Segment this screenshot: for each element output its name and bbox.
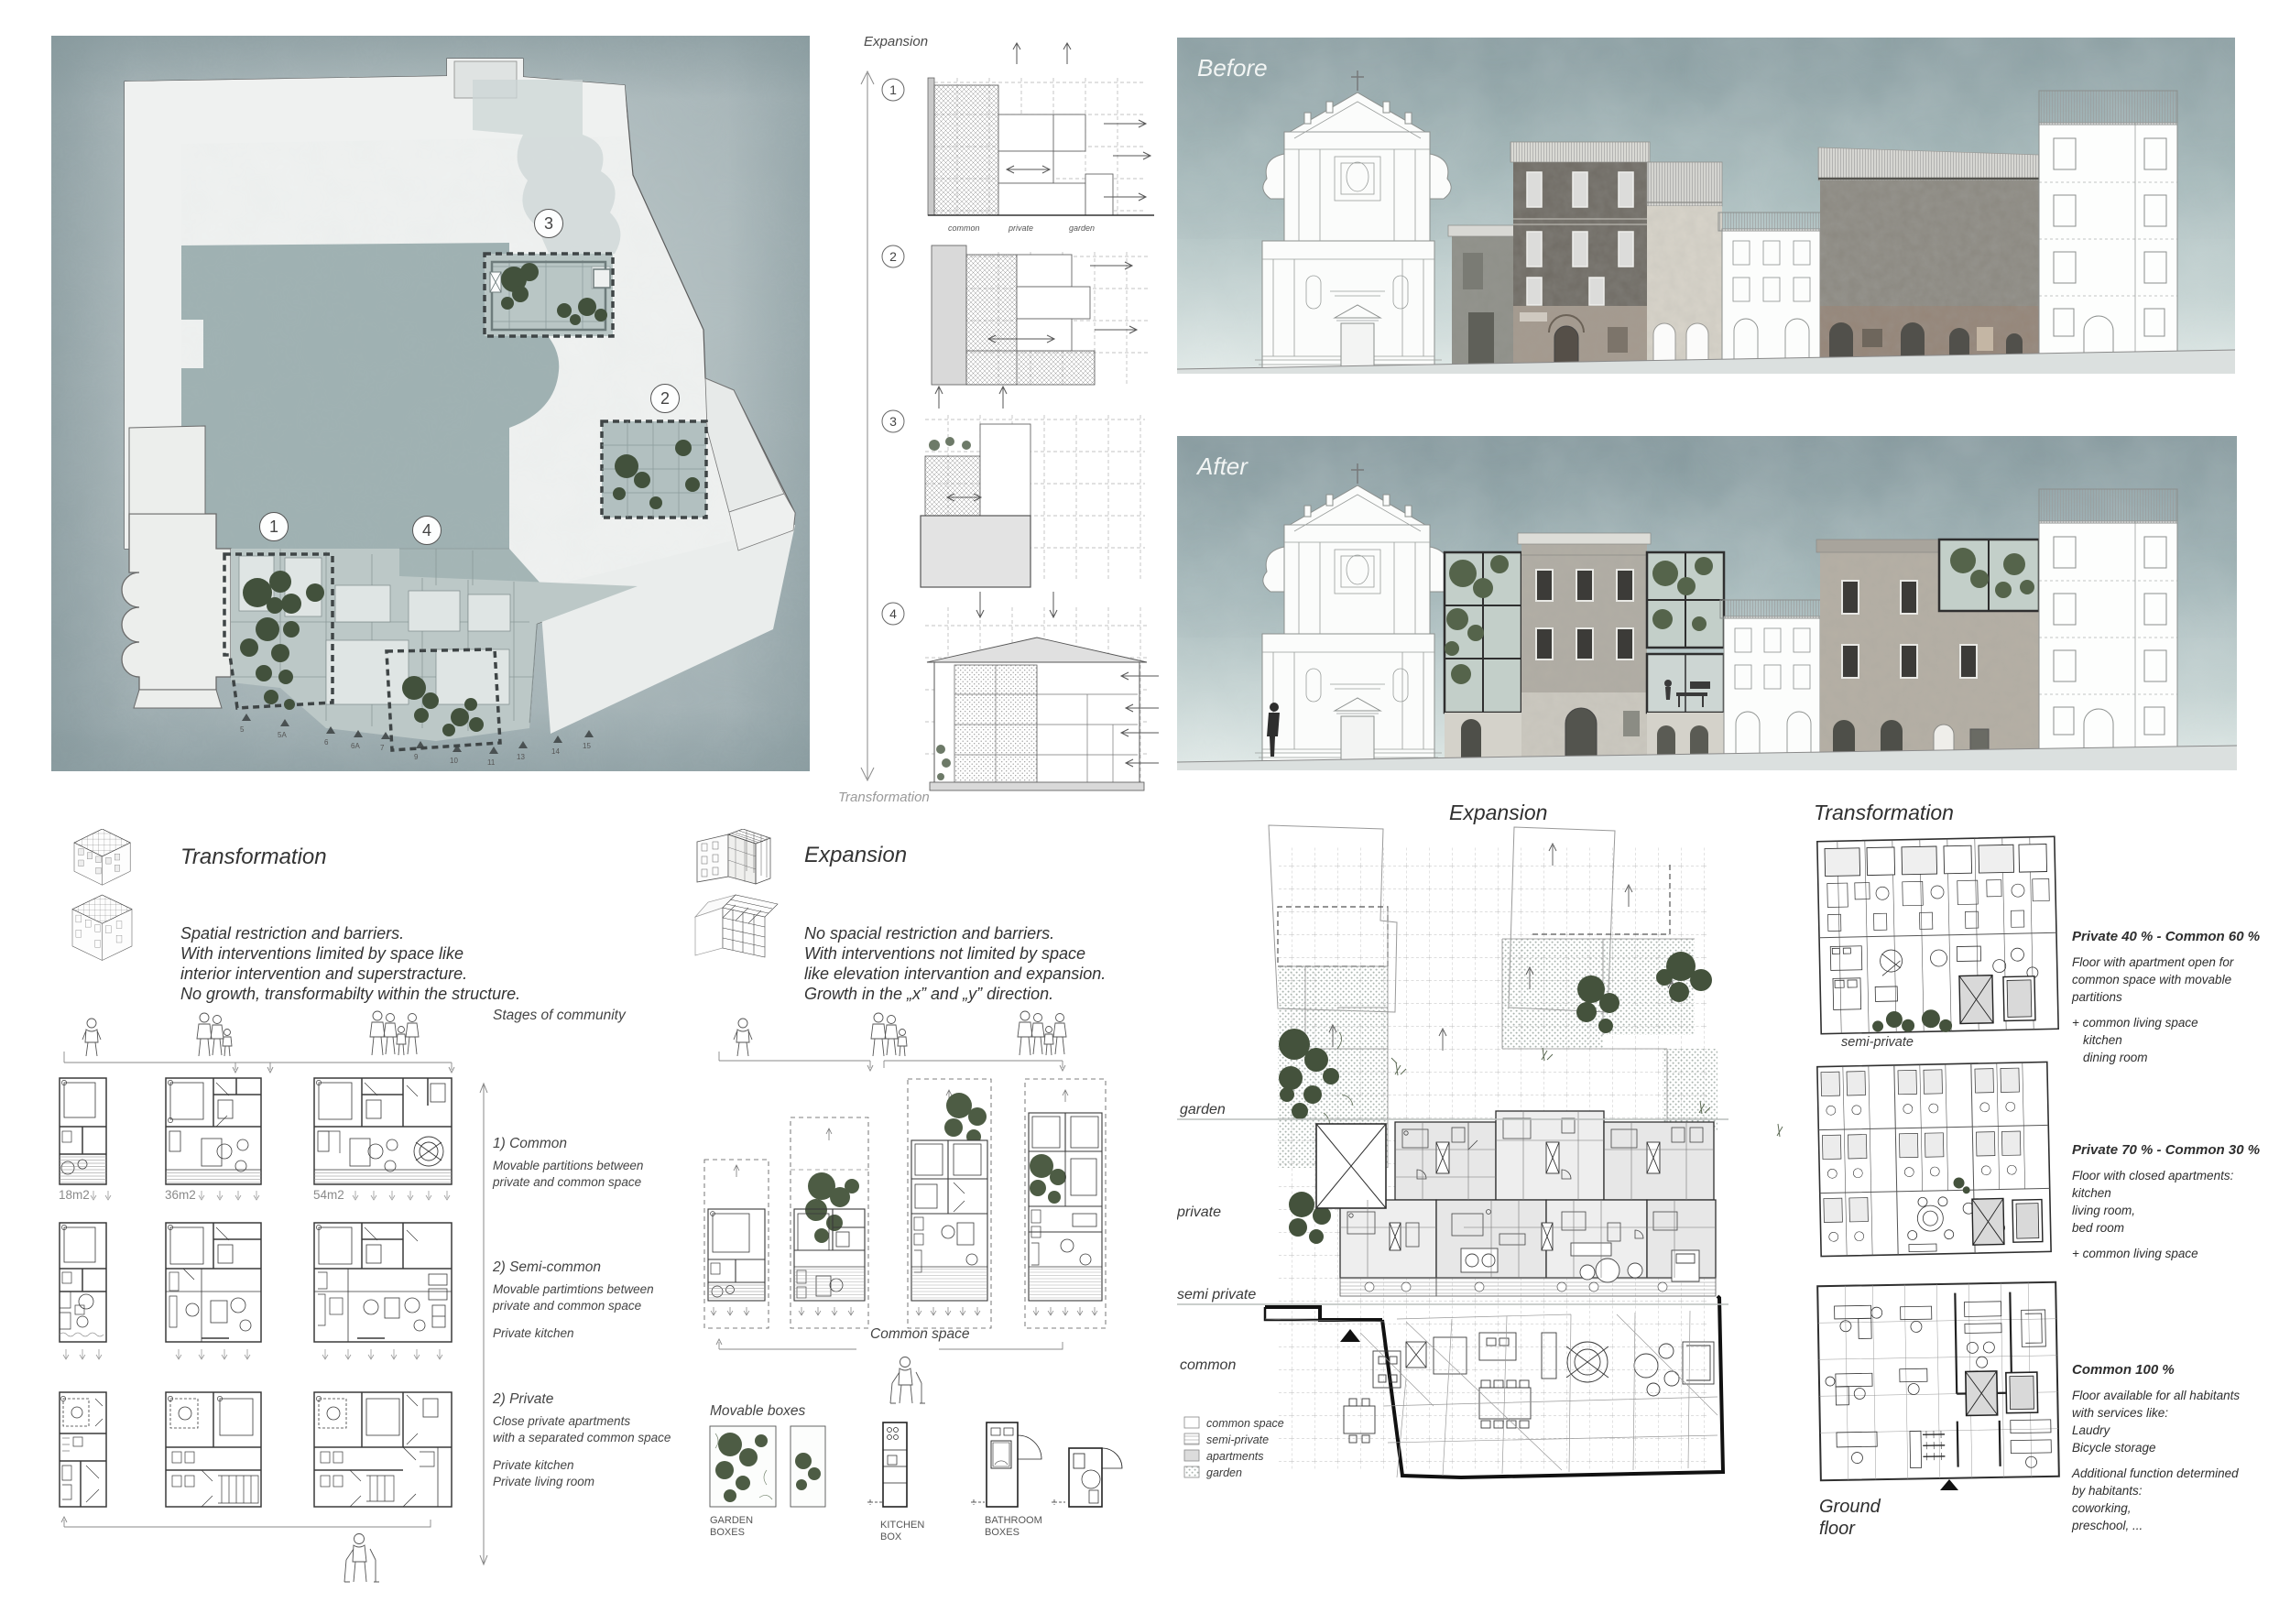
svg-text:Private living room: Private living room — [493, 1475, 594, 1488]
svg-text:No growth, transformabilty wit: No growth, transformabilty within the st… — [180, 985, 520, 1003]
svg-text:Close private apartments: Close private apartments — [493, 1414, 630, 1428]
svg-text:BATHROOM: BATHROOM — [985, 1515, 1042, 1526]
svg-text:1) Common: 1) Common — [493, 1136, 567, 1151]
svg-text:with services like:: with services like: — [2072, 1406, 2168, 1420]
svg-text:11: 11 — [487, 758, 496, 767]
svg-text:+ common living space: + common living space — [2072, 1247, 2198, 1260]
svg-text:Common space: Common space — [870, 1326, 970, 1342]
svg-text:Movable partimtions between: Movable partimtions between — [493, 1282, 654, 1296]
svg-text:private and common space: private and common space — [492, 1175, 641, 1189]
svg-text:BOXES: BOXES — [985, 1527, 1020, 1538]
svg-text:6A: 6A — [351, 742, 360, 750]
svg-text:Movable boxes: Movable boxes — [710, 1403, 806, 1419]
svg-text:common: common — [1180, 1357, 1236, 1373]
svg-text:Floor available for all habita: Floor available for all habitants — [2072, 1389, 2240, 1402]
svg-text:with a separated common space: with a separated common space — [493, 1431, 671, 1444]
svg-text:coworking,: coworking, — [2072, 1501, 2132, 1515]
svg-text:BOXES: BOXES — [710, 1527, 745, 1538]
svg-text:No spacial restriction and bar: No spacial restriction and barriers. — [804, 924, 1054, 943]
svg-text:4: 4 — [889, 606, 897, 621]
svg-text:private and common space: private and common space — [492, 1299, 641, 1313]
svg-text:Transformation: Transformation — [180, 845, 327, 869]
svg-text:GARDEN: GARDEN — [710, 1515, 753, 1526]
svg-text:Floor with closed apartments:: Floor with closed apartments: — [2072, 1169, 2234, 1183]
svg-text:Private 40 % - Common 60 %: Private 40 % - Common 60 % — [2072, 929, 2260, 944]
svg-text:3: 3 — [889, 414, 897, 429]
svg-text:apartments: apartments — [1206, 1450, 1264, 1463]
svg-text:36m2: 36m2 — [165, 1188, 196, 1202]
svg-text:2) Private: 2) Private — [492, 1391, 554, 1407]
svg-text:Private kitchen: Private kitchen — [493, 1458, 574, 1472]
svg-text:Movable partitions between: Movable partitions between — [493, 1159, 643, 1172]
svg-text:KITCHEN: KITCHEN — [880, 1520, 924, 1531]
svg-text:like elevation intervantion an: like elevation intervantion and expansio… — [804, 965, 1106, 983]
svg-text:2: 2 — [660, 389, 670, 408]
svg-text:by habitants:: by habitants: — [2072, 1484, 2143, 1498]
svg-text:Expansion: Expansion — [864, 34, 928, 49]
svg-text:3: 3 — [544, 214, 553, 233]
svg-text:Common 100 %: Common 100 % — [2072, 1362, 2175, 1378]
svg-text:After: After — [1195, 452, 1249, 480]
svg-text:common space with movable: common space with movable — [2072, 973, 2231, 986]
svg-text:10: 10 — [450, 757, 458, 765]
svg-text:5A: 5A — [278, 731, 287, 739]
svg-text:2: 2 — [889, 249, 897, 264]
svg-text:5: 5 — [240, 725, 245, 734]
svg-text:14: 14 — [551, 747, 560, 756]
svg-text:Private 70 % - Common 30 %: Private 70 % - Common 30 % — [2072, 1142, 2260, 1158]
svg-text:semi-private: semi-private — [1206, 1433, 1269, 1446]
svg-text:kitchen: kitchen — [2083, 1033, 2122, 1047]
svg-text:partitions: partitions — [2071, 990, 2122, 1004]
svg-text:common: common — [948, 223, 980, 233]
svg-text:semi private: semi private — [1177, 1287, 1256, 1302]
svg-text:15: 15 — [583, 742, 591, 750]
svg-text:+ common living space: + common living space — [2072, 1016, 2198, 1030]
svg-text:floor: floor — [1819, 1519, 1856, 1539]
svg-text:Private kitchen: Private kitchen — [493, 1326, 574, 1340]
svg-text:1: 1 — [269, 518, 278, 536]
svg-text:interior intervention and sup: interior intervention and superstracture… — [180, 965, 467, 983]
svg-text:Additional function determined: Additional function determined — [2071, 1466, 2239, 1480]
svg-text:Stages of community: Stages of community — [493, 1008, 627, 1023]
svg-text:Ground: Ground — [1819, 1497, 1881, 1517]
svg-text:7: 7 — [380, 744, 385, 752]
svg-text:dining room: dining room — [2083, 1051, 2148, 1064]
svg-text:living room,: living room, — [2072, 1204, 2135, 1217]
svg-text:Floor with apartment open for: Floor with apartment open for — [2072, 955, 2234, 969]
svg-text:garden: garden — [1206, 1466, 1242, 1479]
svg-text:private: private — [1177, 1204, 1221, 1220]
svg-text:54m2: 54m2 — [313, 1188, 344, 1202]
svg-text:garden: garden — [1180, 1102, 1226, 1117]
svg-text:4: 4 — [422, 521, 431, 540]
svg-text:1: 1 — [889, 82, 897, 97]
svg-text:kitchen: kitchen — [2072, 1186, 2111, 1200]
svg-text:Before: Before — [1197, 54, 1268, 82]
svg-text:bed room: bed room — [2072, 1221, 2124, 1235]
svg-text:BOX: BOX — [880, 1531, 902, 1542]
svg-text:Laudry: Laudry — [2072, 1423, 2111, 1437]
svg-text:common space: common space — [1206, 1417, 1284, 1430]
svg-text:2) Semi-common: 2) Semi-common — [492, 1259, 601, 1275]
svg-text:Expansion: Expansion — [804, 843, 907, 867]
svg-text:13: 13 — [517, 753, 525, 761]
svg-text:garden: garden — [1069, 223, 1095, 233]
svg-text:private: private — [1008, 223, 1033, 233]
svg-text:Spatial restriction and barri: Spatial restriction and barriers. — [180, 924, 404, 943]
svg-text:Transformation: Transformation — [838, 790, 930, 805]
svg-text:6: 6 — [324, 738, 329, 747]
svg-text:preschool, ...: preschool, ... — [2071, 1519, 2143, 1532]
svg-text:semi-private: semi-private — [1841, 1035, 1914, 1050]
svg-text:18m2: 18m2 — [59, 1188, 90, 1202]
svg-text:Bicycle storage: Bicycle storage — [2072, 1441, 2156, 1455]
svg-text:With interventions limited b: With interventions limited by space like — [180, 944, 463, 963]
svg-text:With interventions not limi: With interventions not limited by space — [804, 944, 1085, 963]
svg-text:Growth in the „x” and „y” dire: Growth in the „x” and „y” direction. — [804, 985, 1053, 1003]
svg-text:9: 9 — [414, 753, 419, 761]
